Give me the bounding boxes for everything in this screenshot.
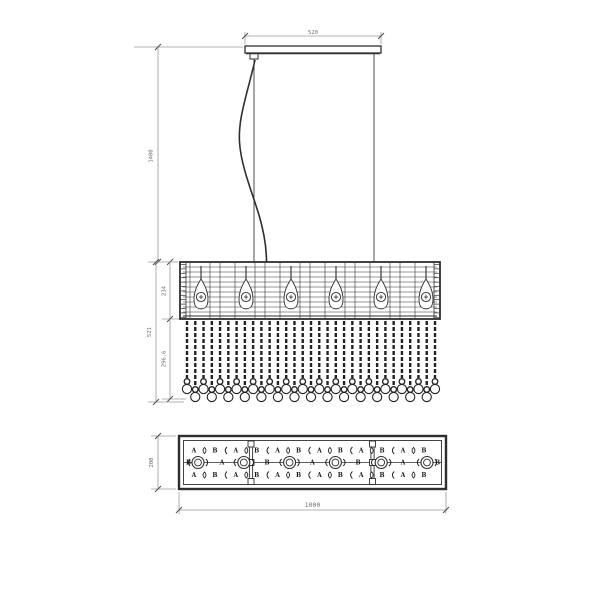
crystal-ball [422,392,431,401]
shade-height-dimension: 234 [162,259,180,322]
bulb-row [194,266,433,309]
candle-bulb [374,266,388,309]
crystal-ring [350,379,356,385]
crystal-ball [397,384,406,393]
crystal-ring [267,379,273,385]
candle-bulb [284,266,298,309]
crystal-ball [240,392,249,401]
crystal-ball [232,384,241,393]
plan-crystal-layout: ABABABABABABABABABABABABBABABAB [186,441,440,485]
crystal-strand [199,321,208,394]
crystal-ball [191,392,200,401]
crystal-ring [358,387,364,393]
crystal-glyph [329,447,332,454]
crystal-ball [406,392,415,401]
crystal-ball [290,392,299,401]
crystal-strand [430,321,439,394]
crystal-ball [331,384,340,393]
plan-letter: B [421,448,426,455]
lamp-socket [421,457,433,469]
crystal-arc-glyph [392,447,394,454]
crystal-ring [275,387,281,393]
lower-total-dimension: 521 [147,259,184,405]
crystal-arc-glyph [267,447,269,454]
crystal-ring [432,379,438,385]
crystal-arc-glyph [351,447,353,454]
crystal-ring [201,379,207,385]
crystal-arc-glyph [225,472,227,479]
plan-letter: A [232,472,238,479]
crystal-arc-glyph [351,472,353,479]
crystal-arc-glyph [309,472,311,479]
plan-letter: A [274,448,280,455]
plan-letter: B [380,448,385,455]
crystal-ball [215,384,224,393]
plan-letter: A [274,472,280,479]
crystal-ring [366,379,372,385]
plan-letter: B [254,448,259,455]
crystal-ball [182,384,191,393]
plan-letter: A [316,448,322,455]
crystal-glyph [245,472,248,479]
plan-letter: A [191,448,197,455]
crystal-curtain [182,321,439,402]
crystal-ball [199,384,208,393]
crystal-ring [325,387,331,393]
lamp-socket [192,457,204,469]
power-cord [239,60,266,262]
crystal-strand [397,321,406,394]
crystal-ring [341,387,347,393]
plan-letter: B [264,460,269,467]
crystal-strand [282,321,291,394]
crystal-ball [282,384,291,393]
plan-letter: B [338,472,343,479]
crystal-ball [265,384,274,393]
crystal-strand [232,321,241,394]
crystal-ball [339,392,348,401]
plan-letter: B [296,448,301,455]
plan-letter: A [232,448,238,455]
crystal-glyph [329,472,332,479]
canopy-width-dimension: 520 [242,30,384,44]
lamp-socket [375,457,387,469]
shade-grid [181,262,439,319]
crystal-ball [373,392,382,401]
plan-depth-label: 200 [149,458,155,468]
plan-letter: A [358,448,364,455]
plan-letter: A [191,472,197,479]
crystal-ring [300,379,306,385]
plan-letter: A [400,460,406,467]
candle-bulb [419,266,433,309]
crystal-ring [407,387,413,393]
lamp-socket [238,457,250,469]
crystal-ring [391,387,397,393]
crystal-ball [224,392,233,401]
plan-letter: A [316,472,322,479]
lamp-socket [284,457,296,469]
crystal-strand [364,321,373,394]
plan-letter: B [355,460,360,467]
shade-body [180,262,440,319]
crystal-ball [381,384,390,393]
crystal-ball [249,384,258,393]
crystal-ball [315,384,324,393]
crystal-ring [424,387,430,393]
crystal-ring [383,379,389,385]
crystal-glyph [412,472,415,479]
candle-bulb [239,266,253,309]
plan-letter: B [435,460,440,467]
candle-bulb [194,266,208,309]
crystal-ball [414,384,423,393]
crystal-strand [215,321,224,394]
crystal-ring [209,387,215,393]
crystal-ring [217,379,223,385]
canopy-width-label: 520 [308,30,318,36]
crystal-ball [389,392,398,401]
crystal-strand [182,321,191,394]
crystal-ball [306,392,315,401]
ceiling-plate [245,46,381,59]
plan-letter: B [254,472,259,479]
crystal-ring [226,387,232,393]
crystal-ring [283,379,289,385]
crystal-arc-glyph [392,472,394,479]
lamp-socket [329,457,341,469]
plan-section-divider [370,441,376,485]
front-elevation: 520 1400 [134,30,440,405]
crystal-glyph [245,447,248,454]
plan-letter: A [358,472,364,479]
plan-width-dimension: 1000 [176,492,449,514]
plan-letter: A [219,460,225,467]
crystal-ring [250,379,256,385]
crystal-glyph [203,447,206,454]
crystal-ring [399,379,405,385]
crystal-ball [257,392,266,401]
crystal-ring [192,387,198,393]
crystal-strand [331,321,340,394]
crystal-ring [333,379,339,385]
crystal-ball [348,384,357,393]
lower-total-label: 521 [147,327,153,337]
plan-letter: A [309,460,315,467]
crystal-drop-label: 296.6 [162,351,168,368]
crystal-ring [184,379,190,385]
plan-letter: B [380,472,385,479]
crystal-strand [298,321,307,394]
crystal-ball [207,392,216,401]
crystal-glyph [287,447,290,454]
plan-depth-dimension: 200 [149,433,176,492]
crystal-ball [430,384,439,393]
plan-letter: B [212,448,217,455]
plan-view: ABABABABABABABABABABABABBABABAB 200 1000 [149,433,449,514]
crystal-glyph [370,447,373,454]
plan-letter: B [296,472,301,479]
crystal-strand [348,321,357,394]
crystal-strand [414,321,423,394]
crystal-ring [416,379,422,385]
plan-letter: B [186,460,191,467]
crystal-ring [308,387,314,393]
crystal-ring [316,379,322,385]
crystal-ring [292,387,298,393]
crystal-ball [298,384,307,393]
suspension-height-dimension: 1400 [134,44,243,265]
suspension-height-label: 1400 [149,149,155,162]
candle-bulb [329,266,343,309]
plan-letter: A [400,472,406,479]
shade-height-label: 234 [162,285,168,296]
crystal-strand [265,321,274,394]
crystal-ring [242,387,248,393]
crystal-ball [356,392,365,401]
crystal-strand [381,321,390,394]
crystal-glyph [287,472,290,479]
plan-width-label: 1000 [305,501,321,509]
crystal-ball [364,384,373,393]
crystal-glyph [412,447,415,454]
crystal-ring [234,379,240,385]
crystal-arc-glyph [309,447,311,454]
crystal-ball [323,392,332,401]
crystal-ring [374,387,380,393]
crystal-arc-glyph [225,447,227,454]
crystal-strand [315,321,324,394]
crystal-arc-glyph [267,472,269,479]
crystal-ring [259,387,265,393]
crystal-glyph [203,472,206,479]
plan-letter: B [421,472,426,479]
plan-letter: A [400,448,406,455]
crystal-strand [249,321,258,394]
crystal-glyph [370,472,373,479]
crystal-ball [273,392,282,401]
plan-letter: B [212,472,217,479]
drawing-canvas: 520 1400 [0,0,600,600]
plan-letter: B [338,448,343,455]
